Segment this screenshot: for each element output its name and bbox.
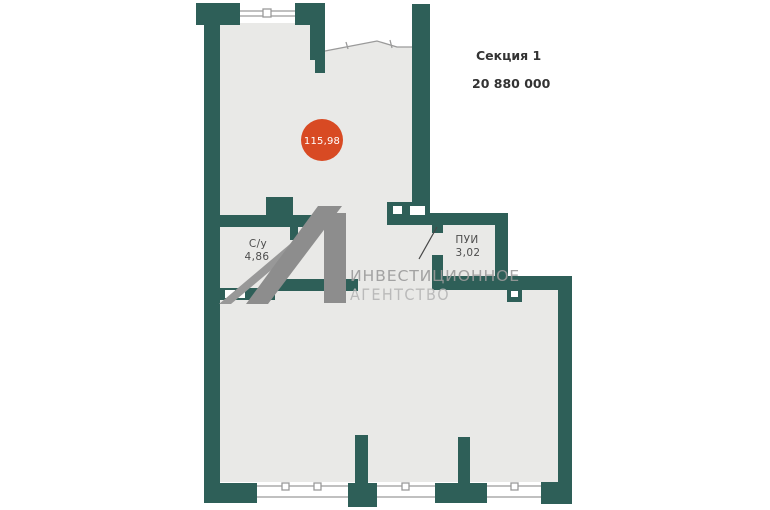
- wall-step-column: [310, 25, 325, 60]
- wall-pier2: [458, 437, 470, 483]
- floor-plan-image[interactable]: ИНВЕСТИЦИОННОЕ АГЕНТСТВО С/у 4,86 ПУИ 3,…: [0, 0, 770, 510]
- room-name-pui: ПУИ: [455, 234, 478, 246]
- room-name-bathroom: С/у: [249, 238, 267, 250]
- wall-right: [558, 276, 572, 503]
- header: Секция 1 20 880 000: [472, 48, 551, 91]
- window-bottom-b: [377, 483, 435, 497]
- wall-top-right-block: [295, 3, 325, 25]
- wall-pier2-base: [435, 483, 487, 503]
- room-area-bathroom: 4,86: [245, 251, 270, 263]
- price-label: 20 880 000: [472, 76, 551, 91]
- section-label: Секция 1: [476, 48, 541, 63]
- window-bottom-a: [257, 483, 348, 497]
- wall-pui-top: [429, 213, 508, 225]
- wall-step-column-foot: [315, 60, 325, 73]
- wall-pier1: [355, 435, 368, 483]
- window-bottom-c: [487, 483, 541, 497]
- wall-bottom-right-block: [541, 482, 572, 504]
- watermark-line2: АГЕНТСТВО: [350, 285, 450, 304]
- floor-plan-page: ИНВЕСТИЦИОННОЕ АГЕНТСТВО С/у 4,86 ПУИ 3,…: [0, 0, 770, 510]
- wall-bath-column: [266, 197, 293, 215]
- wall-bottom-left-block: [204, 483, 257, 503]
- wall-left: [204, 3, 220, 503]
- area-badge-value: 115,98: [304, 136, 340, 147]
- room-area-pui: 3,02: [456, 247, 481, 259]
- wall-right-column: [412, 4, 430, 214]
- window-top: [240, 9, 295, 17]
- area-badge: 115,98: [301, 119, 343, 161]
- wall-pier1-base: [348, 483, 377, 507]
- watermark-line1: ИНВЕСТИЦИОННОЕ: [350, 267, 520, 285]
